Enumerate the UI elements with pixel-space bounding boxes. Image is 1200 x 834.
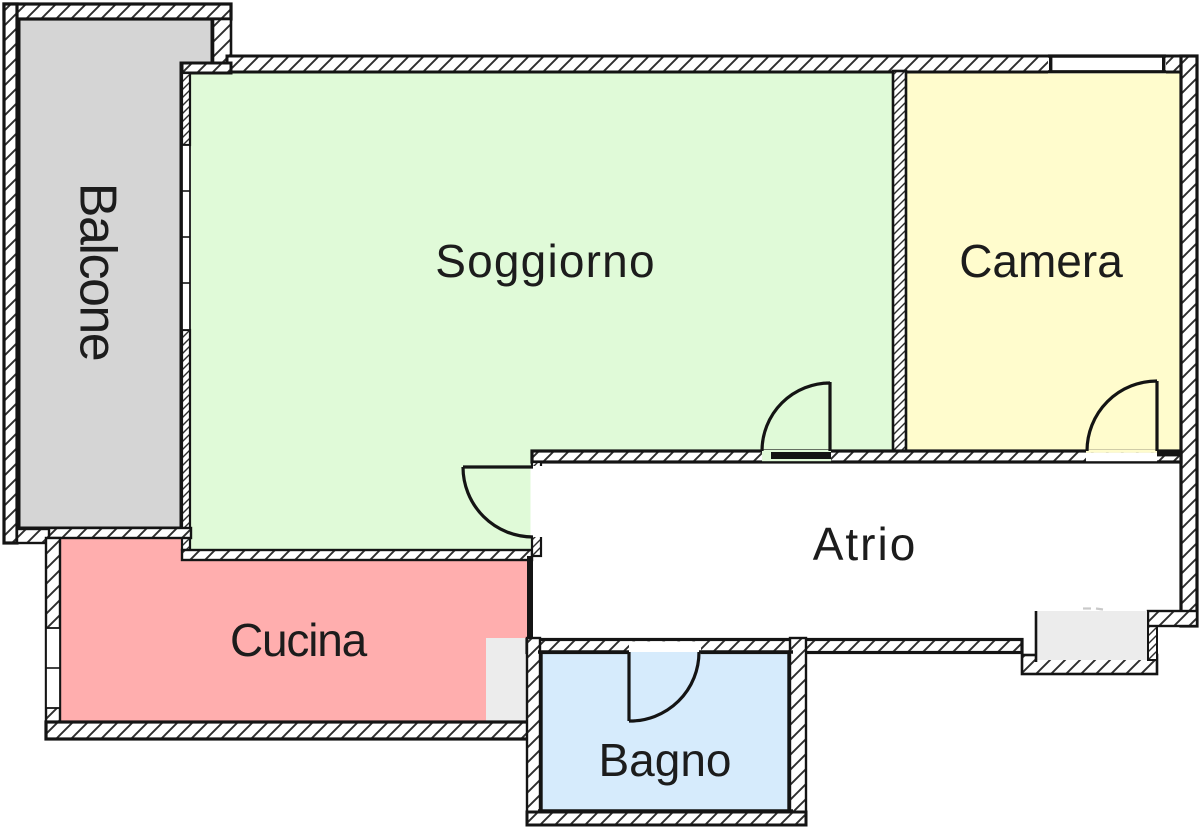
svg-text:Balcone: Balcone [69, 183, 127, 360]
svg-text:Atrio: Atrio [813, 518, 918, 570]
svg-text:Cucina: Cucina [230, 614, 368, 666]
svg-text:Bagno: Bagno [598, 734, 731, 786]
svg-text:Camera: Camera [959, 235, 1123, 287]
svg-text:Soggiorno: Soggiorno [435, 235, 656, 287]
